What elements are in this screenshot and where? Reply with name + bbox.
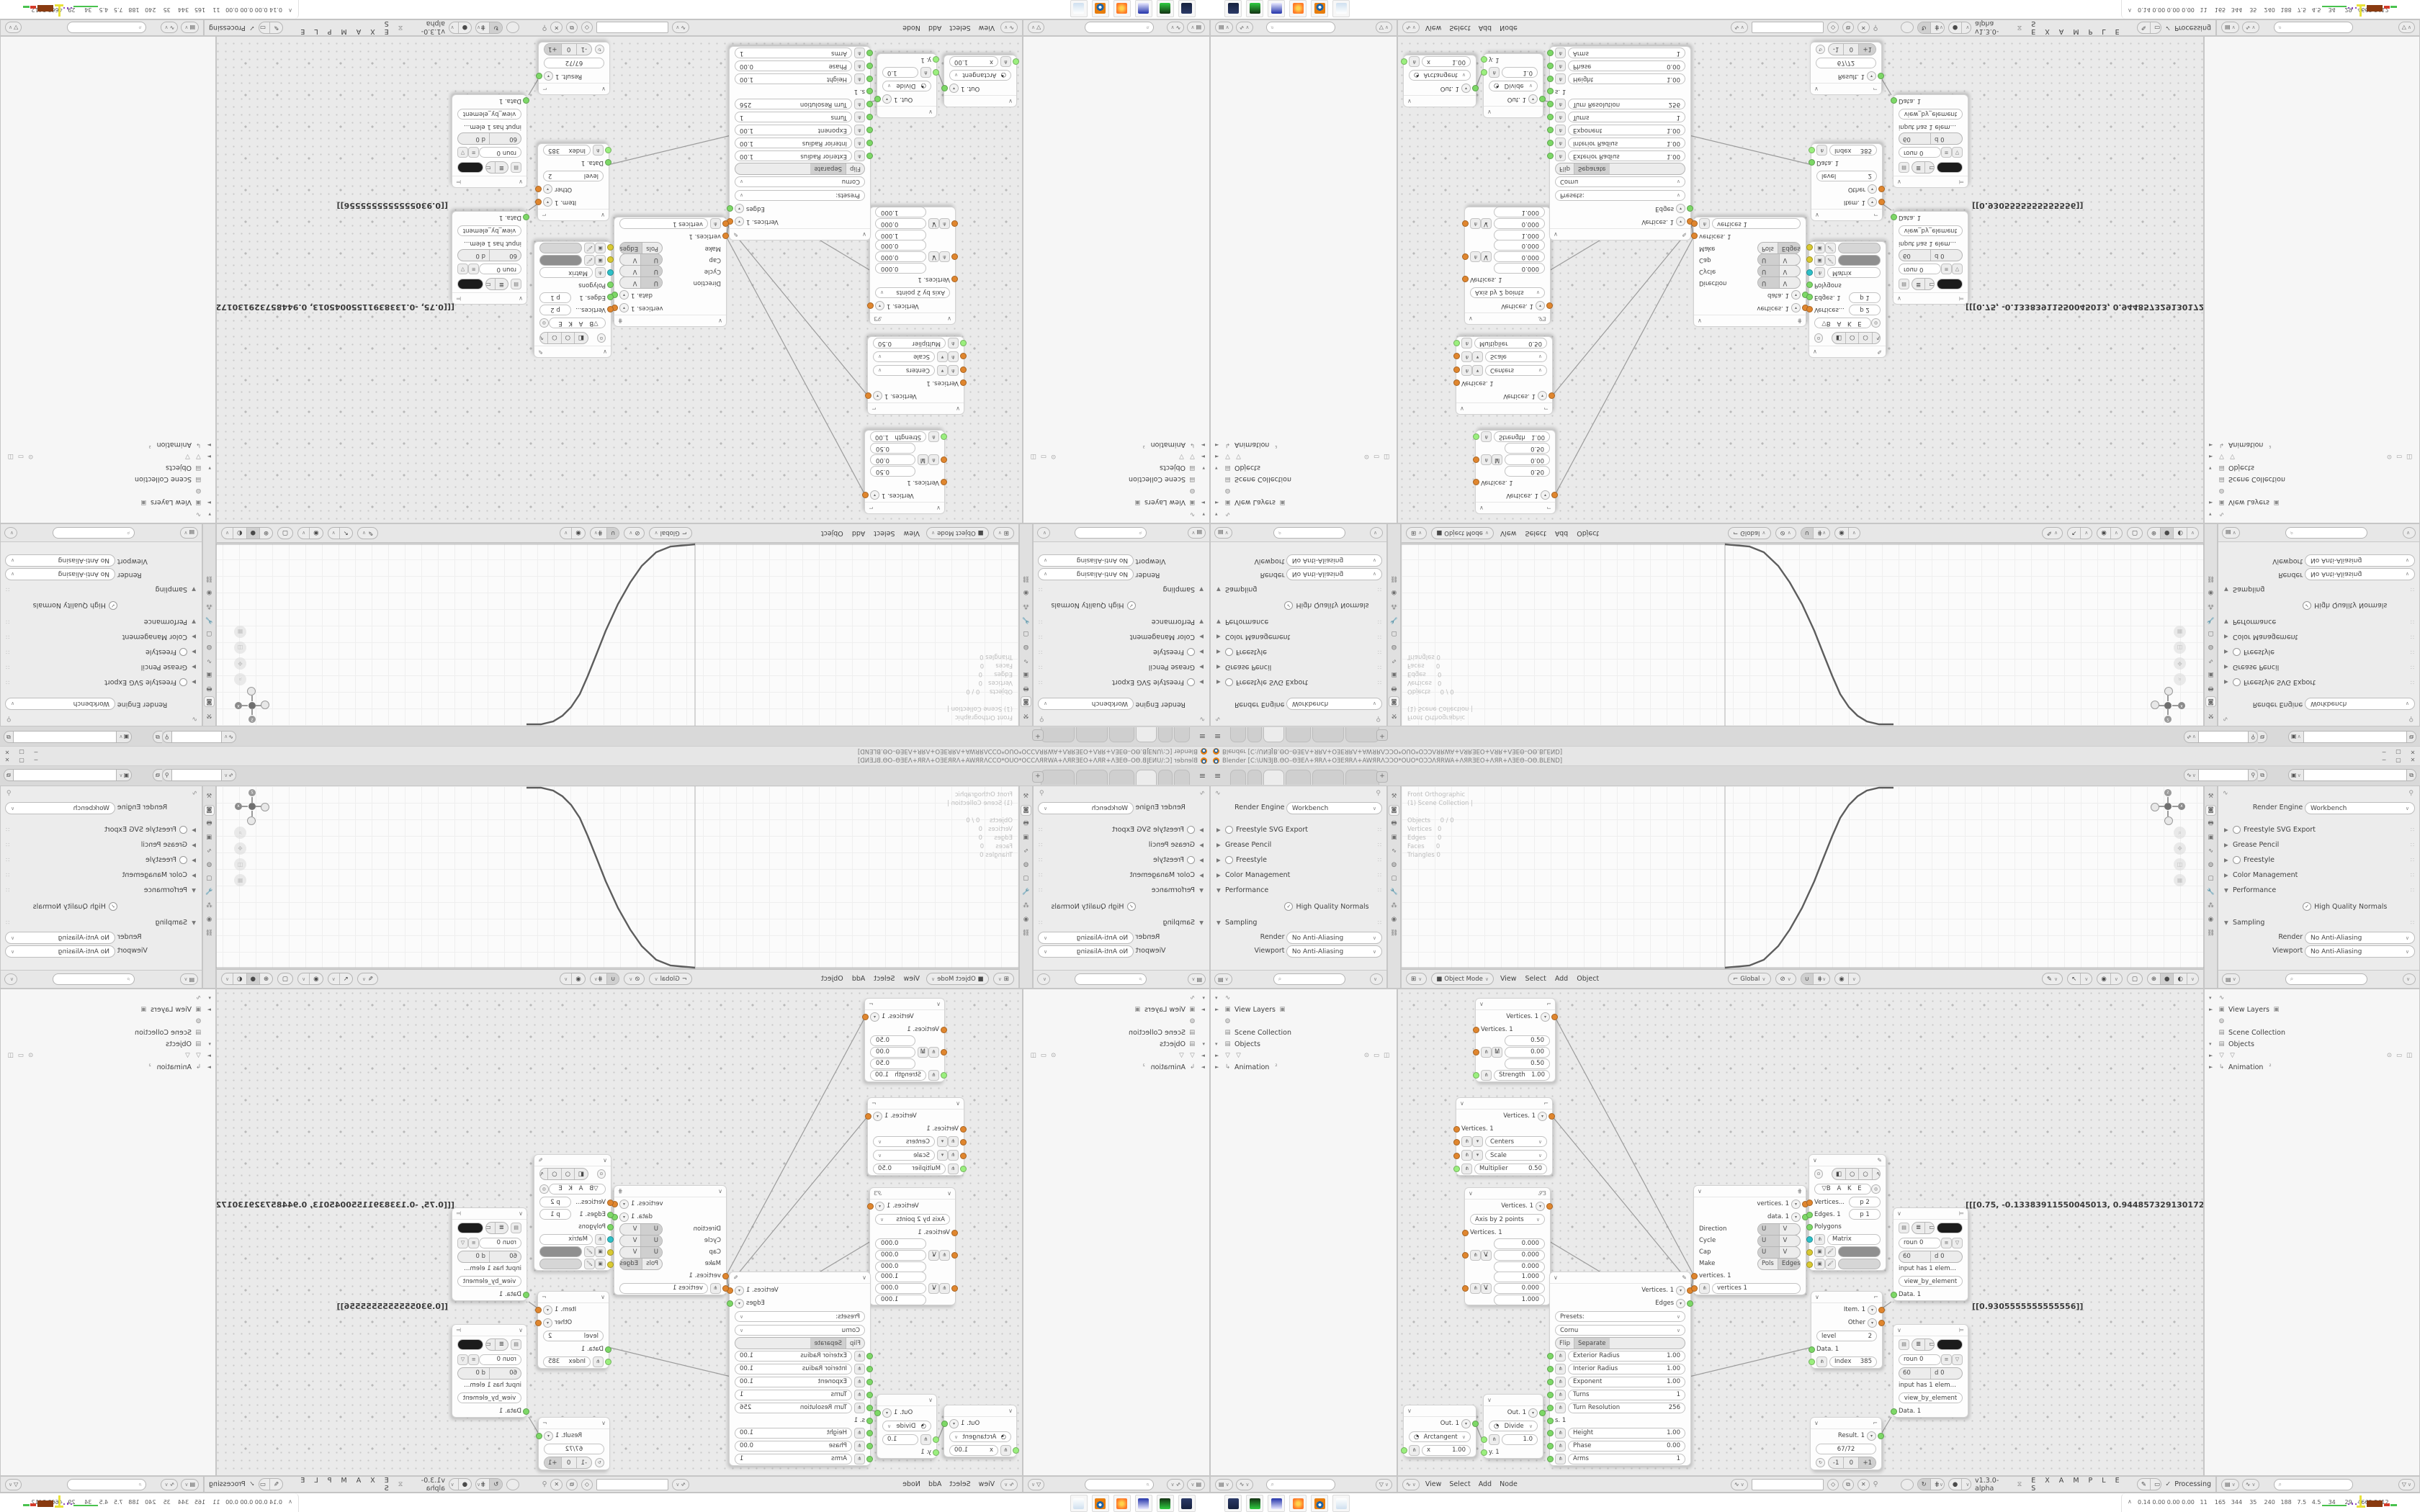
- select-tool-button[interactable]: ↖∨: [2067, 527, 2092, 539]
- panel-performance[interactable]: ▼Performance∷: [1211, 883, 1386, 898]
- tree-name-field[interactable]: [171, 731, 222, 743]
- filter-funnel-button[interactable]: ▽∨: [2398, 1479, 2415, 1490]
- new-image-button[interactable]: ⧉: [2407, 769, 2416, 781]
- output-icon[interactable]: 🖶: [2206, 819, 2215, 829]
- particles-icon[interactable]: ⁂: [2206, 901, 2215, 911]
- fake-user-button[interactable]: ◇: [1827, 22, 1839, 34]
- image-name-field[interactable]: [13, 731, 117, 743]
- new-image-button[interactable]: ⧉: [2407, 731, 2416, 743]
- outliner-row-scene-collection[interactable]: ▤Scene Collection: [1211, 1027, 1397, 1038]
- minimize-button[interactable]: ─: [2380, 749, 2388, 755]
- filter-mode-button[interactable]: ▤∨: [181, 1479, 199, 1490]
- tree-name-field[interactable]: [596, 1479, 668, 1490]
- tray-arrow-icon[interactable]: ∧: [2128, 7, 2132, 14]
- panel-sampling[interactable]: ▼Sampling∷: [1211, 582, 1386, 597]
- image-selector[interactable]: ▣∨ ⧉: [4, 731, 132, 743]
- transform-orientation[interactable]: ⌐ Global∨: [1728, 973, 1770, 985]
- particles-icon[interactable]: ⁂: [1389, 901, 1399, 911]
- render-icon[interactable]: ◙: [2206, 697, 2215, 706]
- world-icon[interactable]: ◍: [2206, 642, 2215, 652]
- navigation-gizmo[interactable]: z x: [233, 788, 273, 828]
- render-icon[interactable]: ◙: [1021, 697, 1031, 706]
- menu-hamburger-icon[interactable]: ≡: [1199, 771, 1206, 780]
- panel-grease-pencil[interactable]: ▶Grease Pencil∷: [1, 660, 202, 675]
- menu-add[interactable]: Add: [1553, 529, 1570, 537]
- menu-add[interactable]: Add: [926, 24, 944, 32]
- annotate-tool-button[interactable]: ✎∨: [2042, 527, 2063, 539]
- outliner-row[interactable]: ▾∿: [2205, 508, 2419, 520]
- viewport-3d[interactable]: Front Orthographic (1) Scene Collection …: [216, 786, 1019, 969]
- panel-color-management[interactable]: ▶Color Management∷: [1034, 868, 1209, 883]
- panel-freestyle-svg-export[interactable]: ▶Freestyle SVG Export∷: [2218, 822, 2419, 837]
- panel-performance[interactable]: ▼Performance∷: [1211, 614, 1386, 629]
- viewport-aa-select[interactable]: No Anti-Aliasing∨: [1038, 554, 1134, 567]
- outliner-row[interactable]: ▾∿: [1023, 508, 1209, 520]
- taskbar-app-system-monitor[interactable]: [1224, 1495, 1242, 1512]
- panel-freestyle[interactable]: ▶Freestyle∷: [1211, 644, 1386, 660]
- tree-select-button[interactable]: ∿∨: [1731, 22, 1748, 34]
- scene-icon[interactable]: ∿: [2206, 656, 2215, 665]
- physics-icon[interactable]: ◉: [2206, 915, 2215, 924]
- workspace-tab-2[interactable]: [1247, 727, 1262, 742]
- draft-live-toggle[interactable]: ✎▭: [2137, 1478, 2161, 1490]
- overlay-node-toggle[interactable]: ●∨: [449, 22, 472, 34]
- menu-select[interactable]: Select: [1523, 529, 1549, 537]
- outliner-search-input[interactable]: ⌕: [1085, 1479, 1154, 1490]
- render-camera-icon[interactable]: ◫: [8, 1052, 14, 1059]
- new-copy-button[interactable]: ⧉: [2258, 731, 2267, 743]
- constraints-icon[interactable]: ⛓: [2206, 929, 2215, 938]
- sverchok-node-editor[interactable]: ∨⌐Vertices. 1▾Vertices. 1⋔▴0.500.000.50M…: [216, 989, 1023, 1476]
- editor-type-button[interactable]: ∿∨: [1000, 1479, 1018, 1490]
- render-aa-select[interactable]: No Anti-Aliasing∨: [1038, 568, 1134, 580]
- object-icon[interactable]: ▢: [205, 629, 214, 638]
- taskbar-app-drive-tool[interactable]: [1157, 0, 1174, 17]
- view-layer-icon[interactable]: ▣: [1021, 833, 1031, 842]
- properties-pin-icon[interactable]: ⚲: [2408, 715, 2414, 722]
- mode-selector[interactable]: ■ Object Mode∨: [926, 527, 989, 539]
- camera-view-icon[interactable]: ◫: [234, 858, 246, 870]
- panel-color-management[interactable]: ▶Color Management∷: [1, 868, 202, 883]
- draft-live-toggle[interactable]: ✎▭: [259, 1478, 283, 1490]
- filter-mode-button[interactable]: ▤∨: [1187, 1479, 1205, 1490]
- outliner-display-button[interactable]: ∿∨: [1167, 1479, 1184, 1490]
- grid-toggle-icon[interactable]: ▦: [234, 626, 246, 638]
- taskbar-app-floppy-64[interactable]: [1268, 0, 1285, 17]
- visibility-eye-icon[interactable]: ⊙: [1364, 1052, 1369, 1059]
- outliner-row[interactable]: ►▽▽⊙▭◫: [2205, 1050, 2419, 1061]
- gizmo-x-axis[interactable]: x: [2178, 803, 2185, 810]
- filter-funnel-button[interactable]: ▽∨: [2398, 22, 2415, 34]
- xray-toggle[interactable]: ▢: [2127, 973, 2143, 985]
- annotate-tool-button[interactable]: ✎∨: [2042, 973, 2063, 985]
- image-selector[interactable]: ▣∨ ⧉: [2288, 769, 2416, 781]
- taskbar-app-system-monitor[interactable]: [1224, 0, 1242, 17]
- display-filter-button[interactable]: ▤∨: [180, 527, 198, 539]
- pin-icon[interactable]: ⚲: [162, 769, 171, 781]
- node-tree-selector[interactable]: ∿∨ ⚲ ⧉: [153, 731, 236, 743]
- workspace-tab-5[interactable]: [1076, 727, 1108, 742]
- pan-hand-icon[interactable]: ✥: [2174, 842, 2186, 855]
- constraints-icon[interactable]: ⛓: [1021, 574, 1031, 583]
- outliner-row[interactable]: ►▽▽⊙▭◫: [1211, 1050, 1397, 1061]
- high-quality-normals-checkbox[interactable]: ✓High Quality Normals: [1, 898, 202, 915]
- properties-pin-icon[interactable]: ⚲: [6, 715, 12, 722]
- close-button[interactable]: ✕: [3, 749, 12, 755]
- transform-orientation[interactable]: ⌐ Global∨: [649, 973, 691, 985]
- title-bar[interactable]: Blender [C:\ŪNƎJB.ΘO–ΘƎEΛ+ЯRΛ+OƎEЯRΛ+AWЯ…: [0, 746, 1210, 756]
- outliner-row-objects[interactable]: ▾▤Objects: [1211, 1038, 1397, 1050]
- fake-user-button[interactable]: ◇: [581, 22, 593, 34]
- workspace-tab-5[interactable]: [1312, 727, 1344, 742]
- properties-pin-icon[interactable]: ⚲: [6, 790, 12, 797]
- display-filter-button[interactable]: ▤∨: [2222, 973, 2240, 985]
- view-layer-icon[interactable]: ▣: [2206, 833, 2215, 842]
- title-bar[interactable]: Blender [C:\ŪNƎJB.ΘO–ΘƎEΛ+ЯRΛ+OƎEЯRΛ+AWЯ…: [1210, 746, 2420, 756]
- options-button[interactable]: ∨: [1037, 973, 1050, 985]
- physics-icon[interactable]: ◉: [1021, 588, 1031, 597]
- workspace-tab-3[interactable]: [1263, 727, 1284, 742]
- overlays-toggle[interactable]: ◉∨: [2097, 527, 2123, 539]
- pin-icon[interactable]: ⚲: [2249, 731, 2258, 743]
- options-button[interactable]: ∨: [1037, 527, 1050, 539]
- proportional-edit-toggle[interactable]: ◉∨: [560, 973, 586, 985]
- taskbar-app-firefox[interactable]: [1289, 1495, 1307, 1512]
- outliner-row-view-layers[interactable]: ►▣View Layers▣: [1023, 1004, 1209, 1015]
- panel-performance[interactable]: ▼Performance∷: [2218, 614, 2419, 629]
- snap-node-toggle[interactable]: ↻⋕ ∨: [475, 1478, 503, 1490]
- outliner-row-view-layers[interactable]: ►▣View Layers▣: [1023, 497, 1209, 508]
- annotate-tool-button[interactable]: ✎∨: [357, 527, 378, 539]
- outliner-row-objects[interactable]: ▾▤Objects: [2205, 462, 2419, 474]
- outliner-row-scene-collection[interactable]: ▤Scene Collection: [1023, 474, 1209, 485]
- navigation-gizmo[interactable]: z x: [2147, 684, 2187, 724]
- outliner-row[interactable]: ▾∿: [1, 508, 215, 520]
- pin-icon[interactable]: ⚲: [2249, 769, 2258, 781]
- zoom-icon[interactable]: ⌕: [2174, 673, 2186, 685]
- proportional-edit-toggle[interactable]: ◉∨: [1834, 973, 1860, 985]
- outliner-row[interactable]: ◍: [1, 485, 215, 497]
- tree-options-button[interactable]: [506, 1479, 519, 1490]
- filter-funnel-button[interactable]: ▽∨: [1376, 22, 1392, 34]
- filter-mode-button[interactable]: ▤∨: [1187, 22, 1205, 34]
- particles-icon[interactable]: ⁂: [1389, 601, 1399, 611]
- panel-freestyle[interactable]: ▶Freestyle∷: [1, 852, 202, 868]
- scene-icon[interactable]: ∿: [1389, 847, 1399, 856]
- xray-toggle[interactable]: ▢: [277, 973, 293, 985]
- panel-performance[interactable]: ▼Performance∷: [1, 883, 202, 898]
- menu-hamburger-icon[interactable]: ≡: [1199, 732, 1206, 741]
- gizmo-z-axis[interactable]: z: [2164, 716, 2172, 723]
- outliner-row-objects[interactable]: ▾▤Objects: [1211, 462, 1397, 474]
- render-icon[interactable]: ◙: [1021, 806, 1031, 815]
- outliner-row[interactable]: ►▽▽⊙▭◫: [1023, 1050, 1209, 1061]
- outliner-row[interactable]: ▾∿: [1211, 508, 1397, 520]
- constraints-icon[interactable]: ⛓: [1389, 929, 1399, 938]
- render-aa-select[interactable]: No Anti-Aliasing∨: [1286, 932, 1382, 944]
- world-icon[interactable]: ◍: [205, 642, 214, 652]
- unlink-button[interactable]: ✕: [550, 22, 563, 34]
- gizmo-minus-z[interactable]: [2164, 687, 2173, 696]
- panel-grease-pencil[interactable]: ▶Grease Pencil∷: [2218, 837, 2419, 852]
- scene-icon[interactable]: ∿: [1389, 656, 1399, 665]
- display-filter-button[interactable]: ▤∨: [1214, 527, 1232, 539]
- display-filter-button[interactable]: ▤∨: [2222, 527, 2240, 539]
- outliner-row[interactable]: ◍: [1, 1015, 215, 1027]
- menu-node[interactable]: Node: [900, 1480, 923, 1488]
- outliner-search-input[interactable]: ⌕: [67, 22, 146, 34]
- outliner-search-input[interactable]: ⌕: [1085, 22, 1154, 34]
- maximize-button[interactable]: ▢: [17, 757, 26, 763]
- outliner-row-animation[interactable]: ►↳Animation²: [1211, 439, 1397, 451]
- panel-sampling[interactable]: ▼Sampling∷: [1034, 915, 1209, 930]
- processing-label[interactable]: Processing: [2174, 24, 2211, 32]
- scene-icon[interactable]: ∿: [1021, 847, 1031, 856]
- zoom-icon[interactable]: ⌕: [234, 673, 246, 685]
- menu-node[interactable]: Node: [1497, 1480, 1520, 1488]
- tool-icon[interactable]: ⚒: [1021, 711, 1031, 720]
- display-filter-button[interactable]: ▤∨: [1214, 973, 1232, 985]
- outliner-display-button[interactable]: ∿∨: [161, 22, 178, 34]
- node-tree-selector[interactable]: ∿∨ ⚲ ⧉: [2184, 769, 2267, 781]
- panel-freestyle-svg-export[interactable]: ▶Freestyle SVG Export∷: [1211, 675, 1386, 690]
- gizmo-minus-z[interactable]: [247, 687, 256, 696]
- filter-mode-button[interactable]: ▤∨: [181, 22, 199, 34]
- panel-grease-pencil[interactable]: ▶Grease Pencil∷: [1211, 837, 1386, 852]
- outliner-row-scene-collection[interactable]: ▤Scene Collection: [1, 474, 215, 485]
- mode-selector[interactable]: ■ Object Mode∨: [1431, 973, 1494, 985]
- viewport-display-icon[interactable]: ▭: [18, 1052, 24, 1059]
- workspace-tab-1[interactable]: [1230, 770, 1246, 785]
- panel-performance[interactable]: ▼Performance∷: [2218, 883, 2419, 898]
- taskbar-app-notepad[interactable]: [1070, 1495, 1088, 1512]
- processing-label[interactable]: Processing: [2174, 1480, 2211, 1488]
- outliner-row-animation[interactable]: ►↳Animation²: [2205, 1061, 2419, 1073]
- panel-freestyle[interactable]: ▶Freestyle∷: [1, 644, 202, 660]
- render-icon[interactable]: ◙: [205, 697, 214, 706]
- object-icon[interactable]: ▢: [205, 874, 214, 883]
- image-selector[interactable]: ▣∨ ⧉: [2288, 731, 2416, 743]
- object-icon[interactable]: ▢: [1389, 629, 1399, 638]
- outliner-row-view-layers[interactable]: ►▣View Layers▣: [1, 1004, 215, 1015]
- draft-live-toggle[interactable]: ✎▭: [2137, 22, 2161, 34]
- particles-icon[interactable]: ⁂: [205, 901, 214, 911]
- tool-icon[interactable]: ⚒: [1389, 792, 1399, 801]
- overlays-toggle[interactable]: ◉∨: [297, 527, 323, 539]
- panel-freestyle-svg-export[interactable]: ▶Freestyle SVG Export∷: [1034, 675, 1209, 690]
- render-engine-select[interactable]: Workbench∨: [2305, 698, 2415, 710]
- image-name-field[interactable]: [13, 769, 117, 781]
- output-icon[interactable]: 🖶: [1021, 683, 1031, 693]
- panel-color-management[interactable]: ▶Color Management∷: [2218, 868, 2419, 883]
- output-icon[interactable]: 🖶: [1021, 819, 1031, 829]
- tree-select-button[interactable]: ∿∨: [672, 1479, 689, 1490]
- panel-freestyle[interactable]: ▶Freestyle∷: [1034, 644, 1209, 660]
- pan-hand-icon[interactable]: ✥: [234, 842, 246, 855]
- filter-mode-button[interactable]: ▤∨: [1215, 22, 1233, 34]
- tool-icon[interactable]: ⚒: [2206, 711, 2215, 720]
- render-engine-select[interactable]: Workbench∨: [1038, 698, 1134, 710]
- filter-funnel-button[interactable]: ▽∨: [1376, 1479, 1392, 1490]
- pan-hand-icon[interactable]: ✥: [234, 657, 246, 670]
- maximize-button[interactable]: ▢: [2394, 749, 2403, 755]
- tree-name-field[interactable]: [2199, 731, 2249, 743]
- workspace-tab-2[interactable]: [1158, 770, 1173, 785]
- new-copy-button[interactable]: ⧉: [2258, 769, 2267, 781]
- menu-select[interactable]: Select: [947, 24, 972, 32]
- minimize-button[interactable]: ─: [2380, 757, 2388, 763]
- pivot-point-button[interactable]: ⊘∨: [624, 973, 645, 985]
- taskbar-app-drive-tool[interactable]: [1246, 0, 1263, 17]
- physics-icon[interactable]: ◉: [205, 915, 214, 924]
- workspace-tab-5[interactable]: [1076, 770, 1108, 785]
- editor-type-button[interactable]: ⊞∨: [1406, 527, 1427, 539]
- panel-color-management[interactable]: ▶Color Management∷: [2218, 629, 2419, 644]
- properties-search-input[interactable]: ⌕: [2285, 973, 2367, 985]
- menu-add[interactable]: Add: [850, 975, 867, 983]
- high-quality-normals-checkbox[interactable]: ✓High Quality Normals: [1211, 898, 1386, 915]
- properties-search-input[interactable]: ⌕: [2285, 527, 2367, 539]
- scene-icon[interactable]: ∿: [205, 847, 214, 856]
- taskbar-app-floppy-64[interactable]: [1135, 0, 1152, 17]
- tree-select-button[interactable]: ∿∨: [672, 22, 689, 34]
- copy-tree-button[interactable]: ⧉: [566, 22, 578, 34]
- workspace-tab-4[interactable]: [1109, 727, 1134, 742]
- high-quality-normals-checkbox[interactable]: ✓High Quality Normals: [2218, 898, 2419, 915]
- navigation-gizmo[interactable]: z x: [233, 684, 273, 724]
- taskbar-app-drive-tool[interactable]: [1246, 1495, 1263, 1512]
- object-icon[interactable]: ▢: [1389, 874, 1399, 883]
- outliner-row[interactable]: ►▽▽⊙▭◫: [2205, 451, 2419, 462]
- outliner-display-button[interactable]: ∿∨: [1236, 1479, 1253, 1490]
- menu-view[interactable]: View: [1498, 529, 1519, 537]
- outliner-row-scene-collection[interactable]: ▤Scene Collection: [2205, 1027, 2419, 1038]
- world-icon[interactable]: ◍: [205, 860, 214, 870]
- view-layer-icon[interactable]: ▣: [1389, 833, 1399, 842]
- zoom-icon[interactable]: ⌕: [234, 827, 246, 839]
- viewport-aa-select[interactable]: No Anti-Aliasing∨: [5, 945, 115, 958]
- unlink-button[interactable]: ✕: [1857, 22, 1870, 34]
- panel-color-management[interactable]: ▶Color Management∷: [1211, 629, 1386, 644]
- workspace-tab-1[interactable]: [1174, 727, 1190, 742]
- viewport-display-icon[interactable]: ▭: [2396, 1052, 2402, 1059]
- new-image-button[interactable]: ⧉: [4, 731, 13, 743]
- menu-object[interactable]: Object: [1574, 975, 1601, 983]
- scene-icon[interactable]: ∿: [2206, 847, 2215, 856]
- grid-toggle-icon[interactable]: ▦: [2174, 626, 2186, 638]
- object-icon[interactable]: ▢: [2206, 874, 2215, 883]
- high-quality-normals-checkbox[interactable]: ✓High Quality Normals: [1034, 898, 1209, 915]
- pin-icon[interactable]: ⚲: [162, 731, 171, 743]
- outliner-row[interactable]: ►▽▽⊙▭◫: [1, 451, 215, 462]
- outliner-row[interactable]: ◍: [1023, 485, 1209, 497]
- taskbar-app-system-monitor[interactable]: [1178, 0, 1196, 17]
- outliner-search-input[interactable]: ⌕: [1266, 22, 1335, 34]
- viewport-aa-select[interactable]: No Anti-Aliasing∨: [1038, 945, 1134, 958]
- menu-view[interactable]: View: [902, 975, 923, 983]
- filter-funnel-button[interactable]: ▽∨: [1028, 1479, 1044, 1490]
- minimize-button[interactable]: ─: [32, 757, 40, 763]
- viewport-display-icon[interactable]: ▭: [1373, 1052, 1379, 1059]
- outliner-row-view-layers[interactable]: ►▣View Layers▣: [1, 497, 215, 508]
- workspace-tab-4[interactable]: [1286, 770, 1311, 785]
- panel-grease-pencil[interactable]: ▶Grease Pencil∷: [2218, 660, 2419, 675]
- outliner-row-scene-collection[interactable]: ▤Scene Collection: [2205, 474, 2419, 485]
- title-bar[interactable]: Blender [C:\ŪNƎJB.ΘO–ΘƎEΛ+ЯRΛ+OƎEЯRΛ+AWЯ…: [1210, 756, 2420, 766]
- taskbar-app-blender[interactable]: [1092, 1495, 1109, 1512]
- transform-orientation[interactable]: ⌐ Global∨: [649, 527, 691, 539]
- taskbar-app-firefox[interactable]: [1113, 0, 1131, 17]
- physics-icon[interactable]: ◉: [1021, 915, 1031, 924]
- outliner-row[interactable]: ▾∿: [1023, 992, 1209, 1004]
- filter-mode-button[interactable]: ▤∨: [2221, 1479, 2239, 1490]
- output-icon[interactable]: 🖶: [205, 819, 214, 829]
- panel-color-management[interactable]: ▶Color Management∷: [1034, 629, 1209, 644]
- tree-options-button[interactable]: [1901, 22, 1914, 34]
- render-camera-icon[interactable]: ◫: [2406, 453, 2412, 460]
- physics-icon[interactable]: ◉: [1389, 915, 1399, 924]
- taskbar-app-floppy-64[interactable]: [1135, 1495, 1152, 1512]
- modifiers-icon[interactable]: 🔧: [205, 615, 214, 624]
- processing-label[interactable]: Processing: [209, 1480, 246, 1488]
- copy-tree-button[interactable]: ⧉: [1842, 1479, 1854, 1490]
- tree-options-button[interactable]: [506, 22, 519, 34]
- outliner-search-input[interactable]: ⌕: [67, 1479, 146, 1490]
- options-button[interactable]: ∨: [4, 973, 17, 985]
- panel-sampling[interactable]: ▼Sampling∷: [1, 915, 202, 930]
- panel-grease-pencil[interactable]: ▶Grease Pencil∷: [1034, 660, 1209, 675]
- view-layer-icon[interactable]: ▣: [1389, 670, 1399, 679]
- panel-freestyle[interactable]: ▶Freestyle∷: [1034, 852, 1209, 868]
- panel-color-management[interactable]: ▶Color Management∷: [1, 629, 202, 644]
- render-engine-select[interactable]: Workbench∨: [1286, 802, 1382, 814]
- taskbar-app-blender[interactable]: [1311, 1495, 1328, 1512]
- editor-type-button[interactable]: ⊞∨: [993, 973, 1014, 985]
- shading-mode-toggle[interactable]: ⊕●◐∨: [2147, 527, 2199, 539]
- viewport-aa-select[interactable]: No Anti-Aliasing∨: [1286, 554, 1382, 567]
- add-workspace-button[interactable]: +: [1376, 729, 1388, 741]
- menu-view[interactable]: View: [1423, 1480, 1444, 1488]
- menu-add[interactable]: Add: [850, 529, 867, 537]
- options-button[interactable]: ∨: [1370, 527, 1383, 539]
- object-icon[interactable]: ▢: [1021, 874, 1031, 883]
- menu-select[interactable]: Select: [871, 975, 897, 983]
- workspace-tab-6[interactable]: [1345, 727, 1379, 742]
- view-layer-icon[interactable]: ▣: [205, 833, 214, 842]
- menu-view[interactable]: View: [902, 529, 923, 537]
- menu-node[interactable]: Node: [900, 24, 923, 32]
- maximize-button[interactable]: ▢: [17, 749, 26, 755]
- filter-mode-button[interactable]: ▤∨: [2221, 22, 2239, 34]
- viewport-aa-select[interactable]: No Anti-Aliasing∨: [1286, 945, 1382, 958]
- outliner-row-animation[interactable]: ►↳Animation²: [1023, 439, 1209, 451]
- xray-toggle[interactable]: ▢: [2127, 527, 2143, 539]
- world-icon[interactable]: ◍: [1389, 860, 1399, 870]
- outliner-row[interactable]: ▾∿: [1, 992, 215, 1004]
- outliner-row[interactable]: ▾∿: [2205, 992, 2419, 1004]
- render-camera-icon[interactable]: ◫: [2406, 1052, 2412, 1059]
- snap-toggle[interactable]: ∪⋕ ∨: [590, 527, 619, 539]
- shading-mode-toggle[interactable]: ⊕●◐∨: [221, 973, 273, 985]
- camera-view-icon[interactable]: ◫: [2174, 858, 2186, 870]
- outliner-row[interactable]: ◍: [2205, 485, 2419, 497]
- physics-icon[interactable]: ◉: [2206, 588, 2215, 597]
- gizmo-minus-z[interactable]: [2164, 816, 2173, 825]
- output-icon[interactable]: 🖶: [1389, 683, 1399, 693]
- output-icon[interactable]: 🖶: [1389, 819, 1399, 829]
- options-button[interactable]: ∨: [4, 527, 17, 539]
- node-tree-selector[interactable]: ∿∨ ⚲ ⧉: [2184, 731, 2267, 743]
